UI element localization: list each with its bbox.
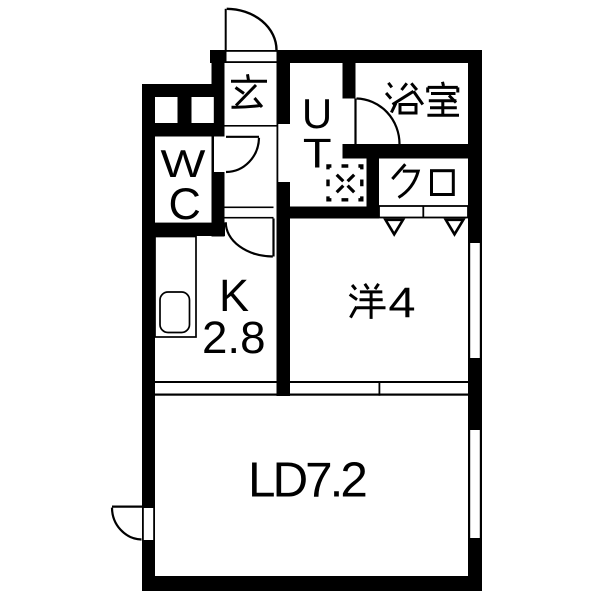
svg-text:LD7.2: LD7.2 xyxy=(248,453,365,508)
svg-text:4: 4 xyxy=(388,279,415,326)
svg-text:T: T xyxy=(303,131,332,177)
svg-text:2.8: 2.8 xyxy=(202,312,266,363)
svg-text:C: C xyxy=(169,179,201,229)
